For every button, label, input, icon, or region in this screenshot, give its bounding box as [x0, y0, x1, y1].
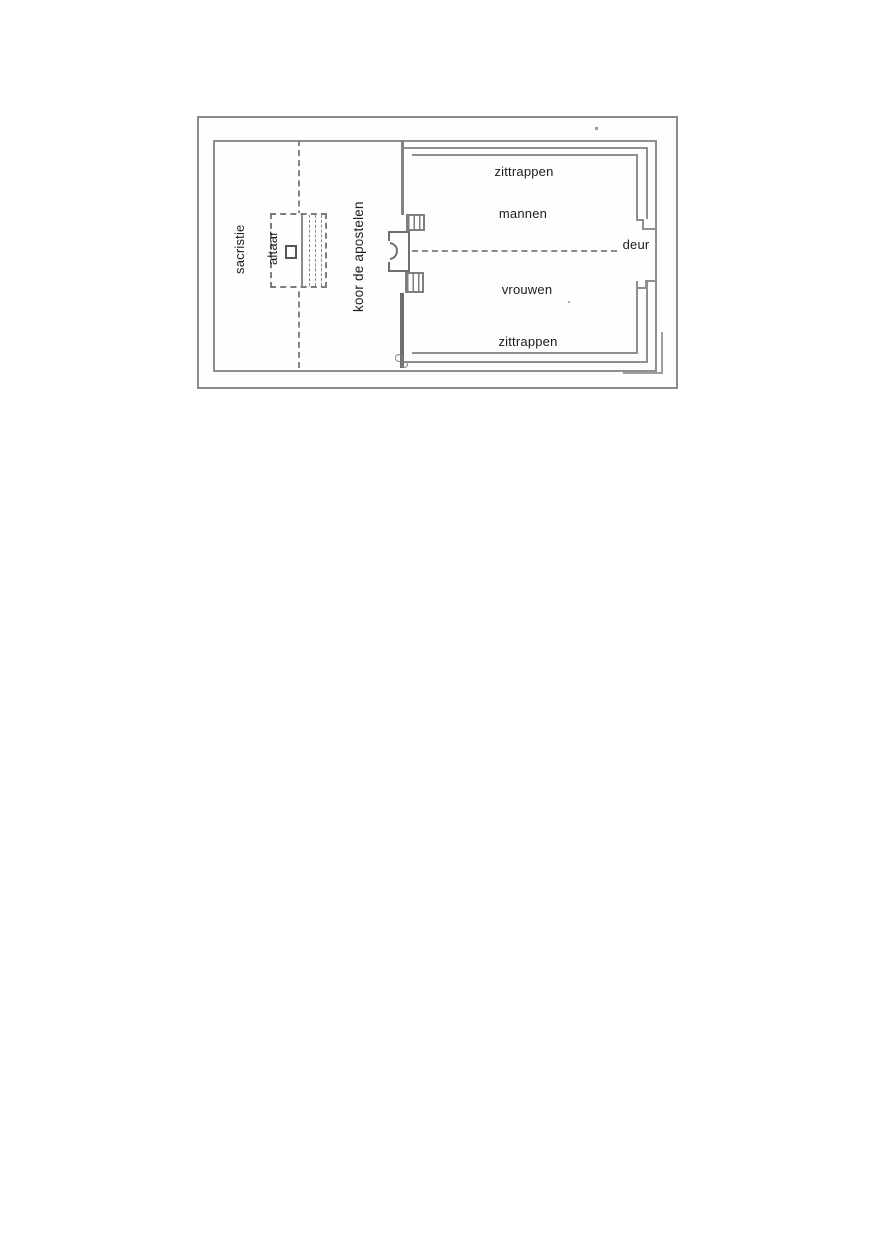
scan-speckle [568, 301, 570, 303]
door-jamb-line [637, 287, 647, 289]
label-door: deur [606, 237, 666, 252]
page: sacristie altaar koor de apostelen zittr… [0, 0, 873, 1240]
altar-step-line [315, 215, 316, 286]
nave-center-divider-line [412, 250, 617, 252]
plan-outer-wall-double-line [661, 332, 663, 374]
choir-screen-stairs [406, 214, 425, 231]
label-choir-of-apostles: koor de apostelen [351, 202, 366, 312]
choir-screen-wall [401, 140, 404, 215]
door-jamb-line [642, 228, 655, 230]
scan-speckle [595, 127, 598, 130]
label-seat-steps-top: zittrappen [459, 164, 589, 179]
altar-table-edge-line [301, 215, 303, 286]
plan-outer-wall-double-line [623, 372, 663, 374]
pulpit-notch-opening [375, 241, 390, 262]
floor-plan-figure: sacristie altaar koor de apostelen zittr… [197, 116, 678, 389]
nave-inner-wall [412, 154, 638, 354]
altar-step-line [309, 215, 310, 286]
label-women: vrouwen [462, 282, 592, 297]
choir-screen-stairs [405, 272, 424, 293]
altar-table-square [285, 245, 297, 259]
column-mark [401, 361, 408, 368]
label-seat-steps-bottom: zittrappen [463, 334, 593, 349]
label-men: mannen [458, 206, 588, 221]
label-sacristy: sacristie [232, 224, 247, 274]
altar-step-line [321, 215, 322, 286]
label-altar: altaar [265, 227, 280, 269]
